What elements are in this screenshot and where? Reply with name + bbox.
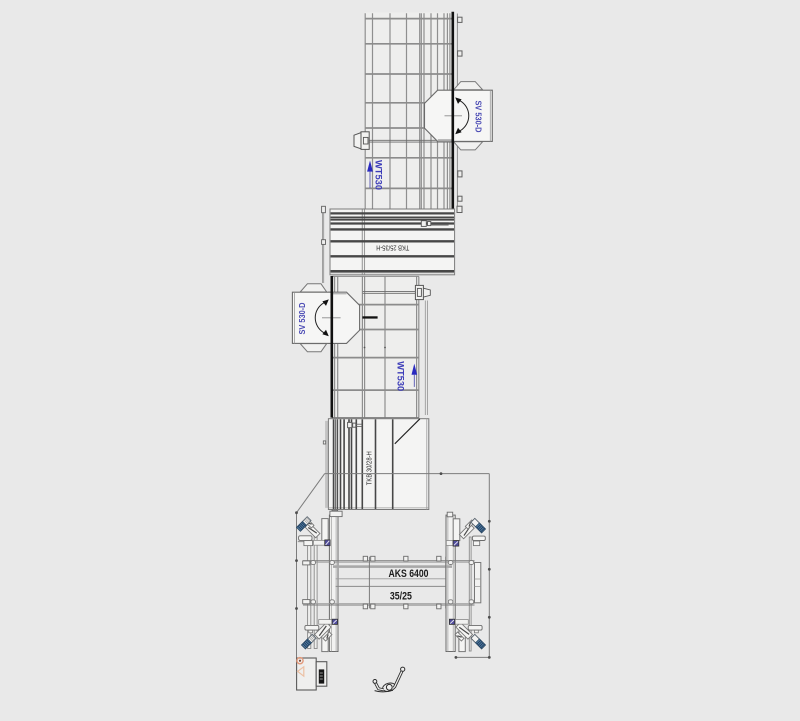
svg-text:35/25: 35/25 — [390, 591, 412, 603]
svg-text:TKB 25/35-H: TKB 25/35-H — [376, 243, 409, 250]
svg-text:SV 530-D: SV 530-D — [474, 101, 484, 133]
svg-text:WT530: WT530 — [395, 361, 406, 391]
svg-text:SV 530-D: SV 530-D — [297, 303, 307, 335]
svg-text:AKS 6400: AKS 6400 — [389, 568, 429, 580]
svg-text:TKB 30/28-H: TKB 30/28-H — [366, 451, 373, 485]
svg-text:WT530: WT530 — [373, 160, 384, 190]
